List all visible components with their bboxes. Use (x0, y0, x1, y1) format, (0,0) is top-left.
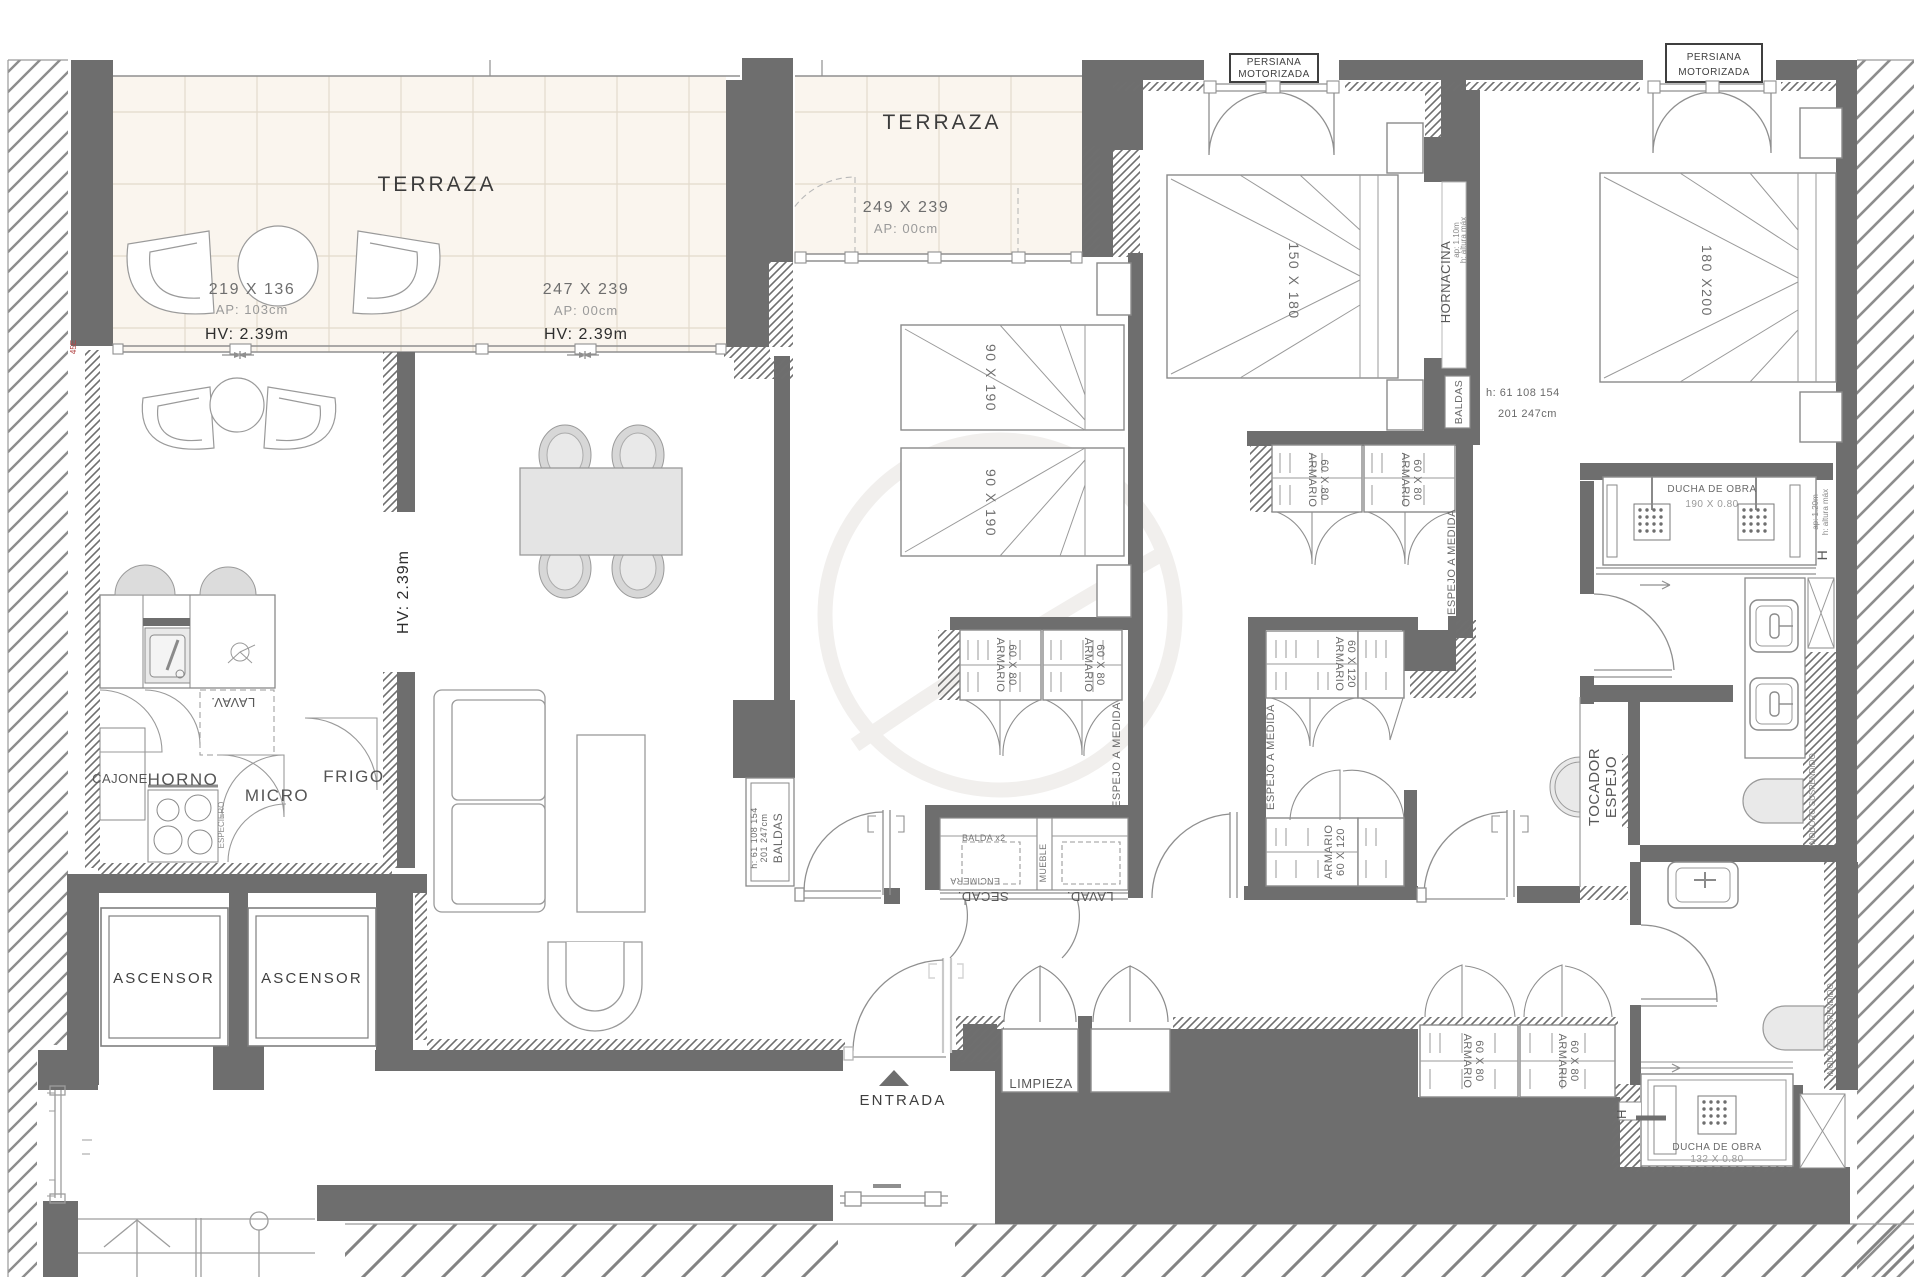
svg-text:AP: 00cm: AP: 00cm (554, 303, 618, 318)
svg-text:150 X 180: 150 X 180 (1286, 242, 1302, 319)
svg-text:PERSIANA: PERSIANA (1687, 52, 1742, 63)
svg-text:TERRAZA: TERRAZA (882, 111, 1001, 134)
svg-text:60 X 80: 60 X 80 (1094, 644, 1106, 685)
svg-text:AP: 00cm: AP: 00cm (874, 221, 938, 236)
svg-text:MOTORIZADA: MOTORIZADA (1238, 69, 1309, 80)
svg-text:249 X 239: 249 X 239 (863, 199, 949, 216)
svg-text:ENCIMERA: ENCIMERA (950, 876, 1000, 886)
svg-text:201 247cm: 201 247cm (759, 813, 769, 862)
svg-text:45E: 45E (69, 340, 78, 354)
svg-text:h: altura máx: h: altura máx (1821, 489, 1830, 535)
svg-text:ARMARIO: ARMARIO (1323, 825, 1335, 880)
svg-text:CAJONE: CAJONE (92, 771, 148, 786)
svg-text:ESPECIERO: ESPECIERO (217, 802, 226, 849)
svg-text:INODORO SUSPENDIDO: INODORO SUSPENDIDO (1808, 753, 1817, 846)
svg-text:ARMARIO: ARMARIO (1461, 1034, 1473, 1089)
svg-text:ARMARIO: ARMARIO (1399, 453, 1411, 508)
svg-text:MICRO: MICRO (245, 786, 309, 805)
svg-text:DUCHA DE OBRA: DUCHA DE OBRA (1667, 484, 1756, 495)
svg-text:60 X 80: 60 X 80 (1473, 1040, 1485, 1081)
svg-text:BALDAS: BALDAS (1453, 380, 1465, 424)
svg-text:TOCADOR: TOCADOR (1586, 748, 1603, 826)
svg-text:FRIGO.: FRIGO. (323, 767, 391, 786)
svg-text:SECAD.: SECAD. (957, 889, 1008, 904)
svg-text:ARMARIO: ARMARIO (1306, 453, 1318, 508)
svg-text:HV: 2.39m: HV: 2.39m (205, 326, 289, 343)
svg-text:60 X 80: 60 X 80 (1006, 644, 1018, 685)
svg-text:190 X 0.80: 190 X 0.80 (1685, 499, 1738, 510)
svg-text:ENTRADA: ENTRADA (859, 1092, 946, 1109)
svg-text:ESPEJO A MEDIDA: ESPEJO A MEDIDA (1446, 509, 1458, 615)
svg-text:90 X 190: 90 X 190 (983, 344, 999, 412)
svg-text:HV: 2.39m: HV: 2.39m (544, 326, 628, 343)
svg-text:247 X 239: 247 X 239 (543, 281, 629, 298)
svg-text:ARMARIO: ARMARIO (1082, 638, 1094, 693)
svg-text:BALDAS: BALDAS (771, 813, 785, 863)
svg-text:BALDA x2: BALDA x2 (962, 833, 1005, 843)
svg-text:H: H (1814, 550, 1830, 561)
svg-text:60 X 80: 60 X 80 (1411, 459, 1423, 500)
svg-text:ESPEJO: ESPEJO (1603, 756, 1620, 818)
svg-text:H: H (1614, 1109, 1629, 1119)
svg-text:INODORO SUSPENDIDO: INODORO SUSPENDIDO (1826, 983, 1835, 1076)
svg-text:LIMPIEZA: LIMPIEZA (1009, 1076, 1072, 1091)
svg-text:HORNACINA: HORNACINA (1438, 241, 1453, 324)
svg-text:h: 61 108 154: h: 61 108 154 (1486, 387, 1560, 399)
svg-text:HORNO: HORNO (148, 770, 219, 789)
svg-text:ASCENSOR: ASCENSOR (113, 970, 215, 987)
svg-text:ESPEJO A MEDIDA: ESPEJO A MEDIDA (1111, 702, 1123, 808)
svg-text:h: altura máx: h: altura máx (1459, 217, 1468, 263)
svg-text:201 247cm: 201 247cm (1498, 408, 1557, 420)
svg-text:LAVAV.: LAVAV. (211, 695, 255, 710)
svg-text:219 X 136: 219 X 136 (209, 281, 295, 298)
svg-text:180 X200: 180 X200 (1699, 245, 1715, 317)
svg-text:DUCHA DE OBRA: DUCHA DE OBRA (1672, 1142, 1761, 1153)
svg-text:TERRAZA: TERRAZA (377, 173, 496, 196)
svg-text:132 X 0.80: 132 X 0.80 (1690, 1154, 1743, 1165)
svg-text:ap: 1.20m: ap: 1.20m (1811, 494, 1820, 530)
svg-text:HV: 2.39m: HV: 2.39m (395, 550, 412, 634)
svg-text:60 X 80: 60 X 80 (1318, 459, 1330, 500)
svg-text:MOTORIZADA: MOTORIZADA (1678, 67, 1749, 78)
svg-text:h: 61 108 154: h: 61 108 154 (749, 807, 759, 869)
svg-text:60 X 120: 60 X 120 (1335, 828, 1347, 876)
svg-text:60 X 120: 60 X 120 (1345, 640, 1357, 688)
svg-text:ESPEJO A MEDIDA: ESPEJO A MEDIDA (1265, 704, 1277, 810)
svg-text:ARMARIO: ARMARIO (994, 638, 1006, 693)
svg-text:MUEBLE: MUEBLE (1038, 844, 1048, 883)
svg-text:60 X 80: 60 X 80 (1568, 1040, 1580, 1081)
svg-text:LAVAD.: LAVAD. (1066, 889, 1113, 904)
svg-text:90 X 190: 90 X 190 (983, 469, 999, 537)
svg-text:ARMARIO: ARMARIO (1556, 1034, 1568, 1089)
svg-text:ARMARIO: ARMARIO (1333, 637, 1345, 692)
svg-text:PERSIANA: PERSIANA (1247, 57, 1302, 68)
svg-text:ASCENSOR: ASCENSOR (261, 970, 363, 987)
svg-text:AP: 103cm: AP: 103cm (216, 302, 289, 317)
